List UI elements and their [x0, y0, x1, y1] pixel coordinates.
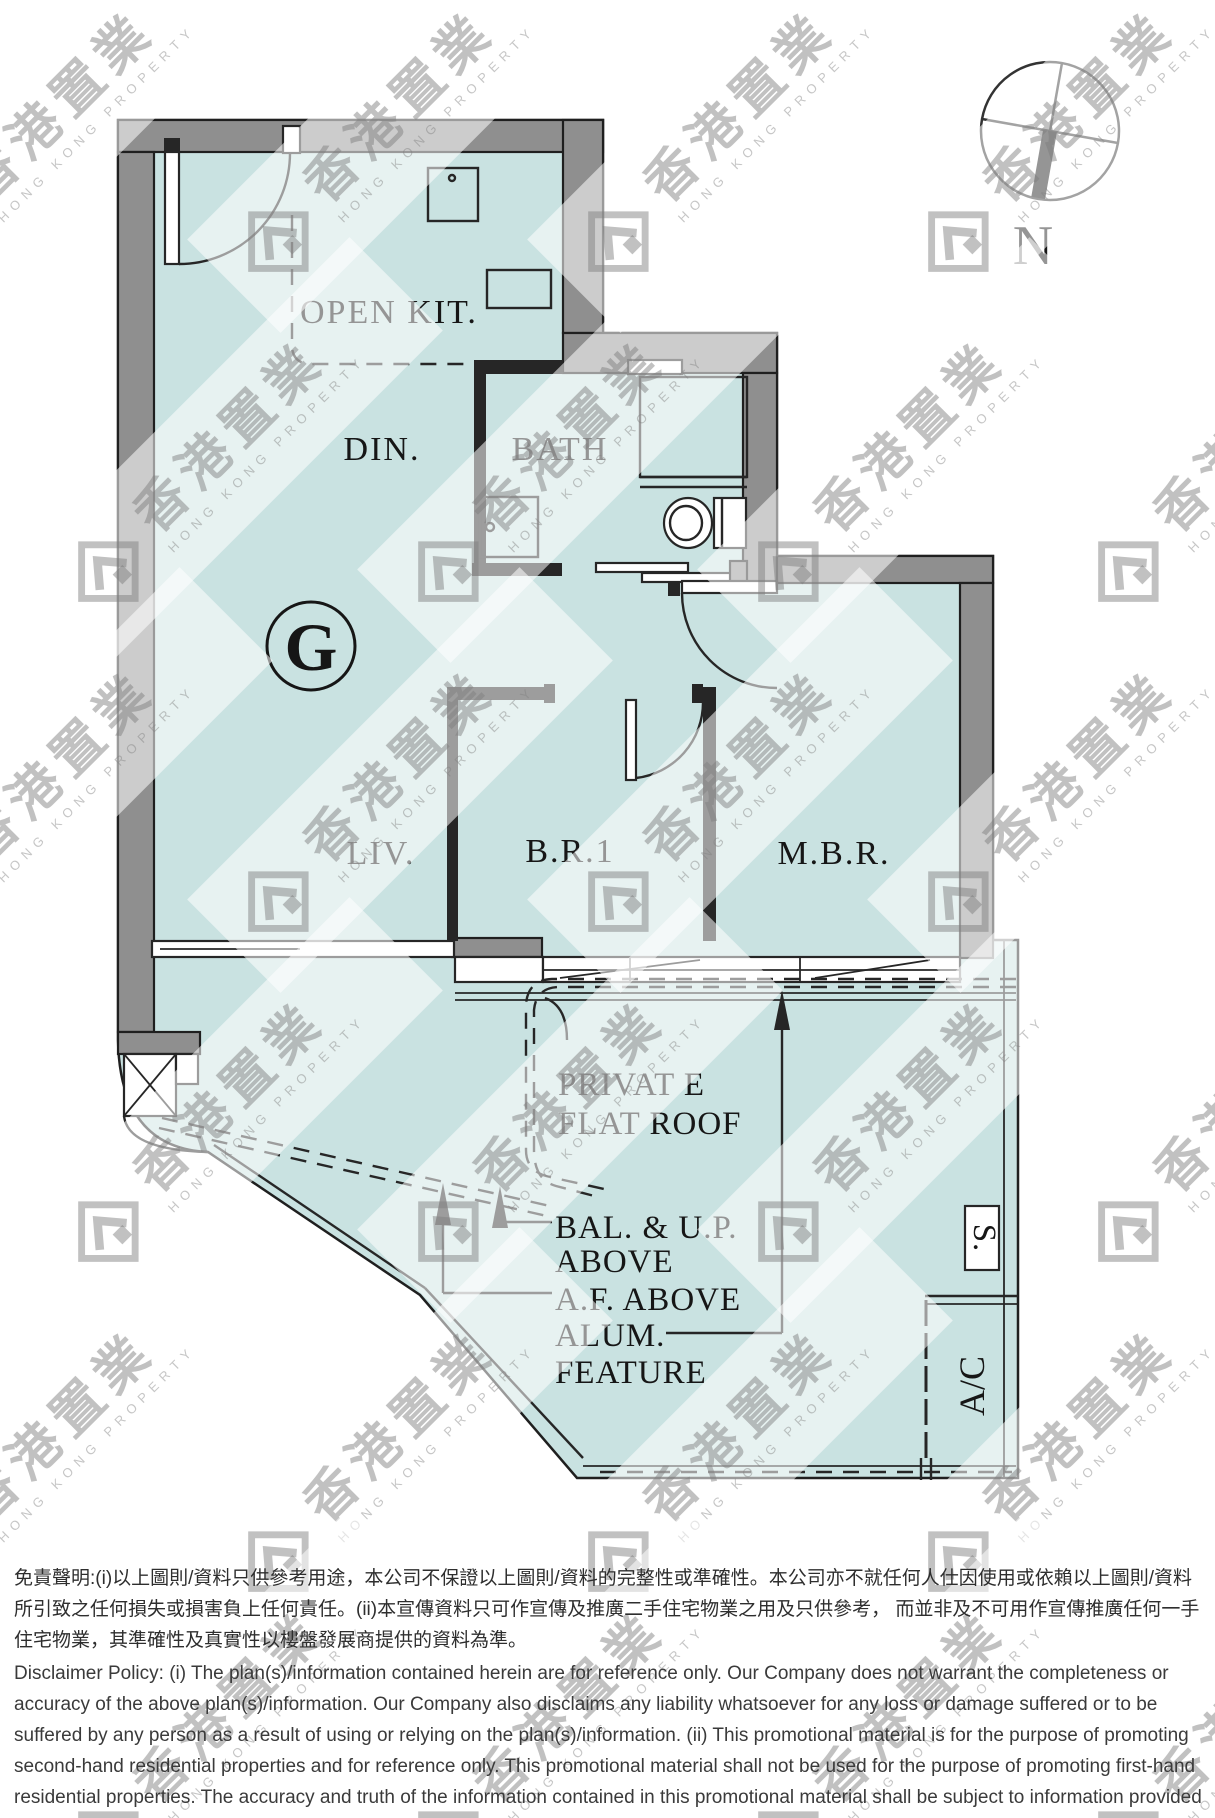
- room-label-master-bedroom: M.B.R.: [777, 835, 890, 872]
- floor-plan-drawing: S. A/C G OPEN KIT. DIN. BATH LIV. B.R.1 …: [0, 0, 1215, 1530]
- label-alum: ALUM.: [555, 1318, 665, 1354]
- disclaimer-block: 免責聲明:(i)以上圖則/資料只供參考用途，本公司不保證以上圖則/資料的完整性或…: [14, 1563, 1204, 1818]
- room-label-open-kitchen: OPEN KIT.: [300, 294, 478, 331]
- compass: N: [970, 51, 1130, 277]
- label-private-flat-roof-2: FLAT ROOF: [558, 1106, 742, 1142]
- label-private-flat-roof-1: PRIVAT E: [558, 1067, 705, 1103]
- room-label-bath: BATH: [512, 431, 609, 468]
- disclaimer-english: Disclaimer Policy: (i) The plan(s)/infor…: [14, 1658, 1204, 1818]
- ac-label: A/C: [952, 1356, 992, 1416]
- room-label-dining: DIN.: [344, 431, 421, 468]
- label-bal-up-2: ABOVE: [555, 1244, 674, 1280]
- s-box-label: S.: [966, 1224, 1002, 1253]
- unit-letter: G: [285, 609, 338, 685]
- floorplan-page: S. A/C G OPEN KIT. DIN. BATH LIV. B.R.1 …: [0, 0, 1215, 1818]
- disclaimer-chinese: 免責聲明:(i)以上圖則/資料只供參考用途，本公司不保證以上圖則/資料的完整性或…: [14, 1563, 1204, 1656]
- label-feature: FEATURE: [555, 1355, 707, 1391]
- compass-north-label: N: [1013, 215, 1053, 277]
- room-label-bedroom1: B.R.1: [525, 833, 614, 870]
- label-bal-up-1: BAL. & U.P.: [555, 1210, 737, 1246]
- label-af-above: A.F. ABOVE: [555, 1282, 741, 1318]
- room-label-living: LIV.: [347, 835, 416, 872]
